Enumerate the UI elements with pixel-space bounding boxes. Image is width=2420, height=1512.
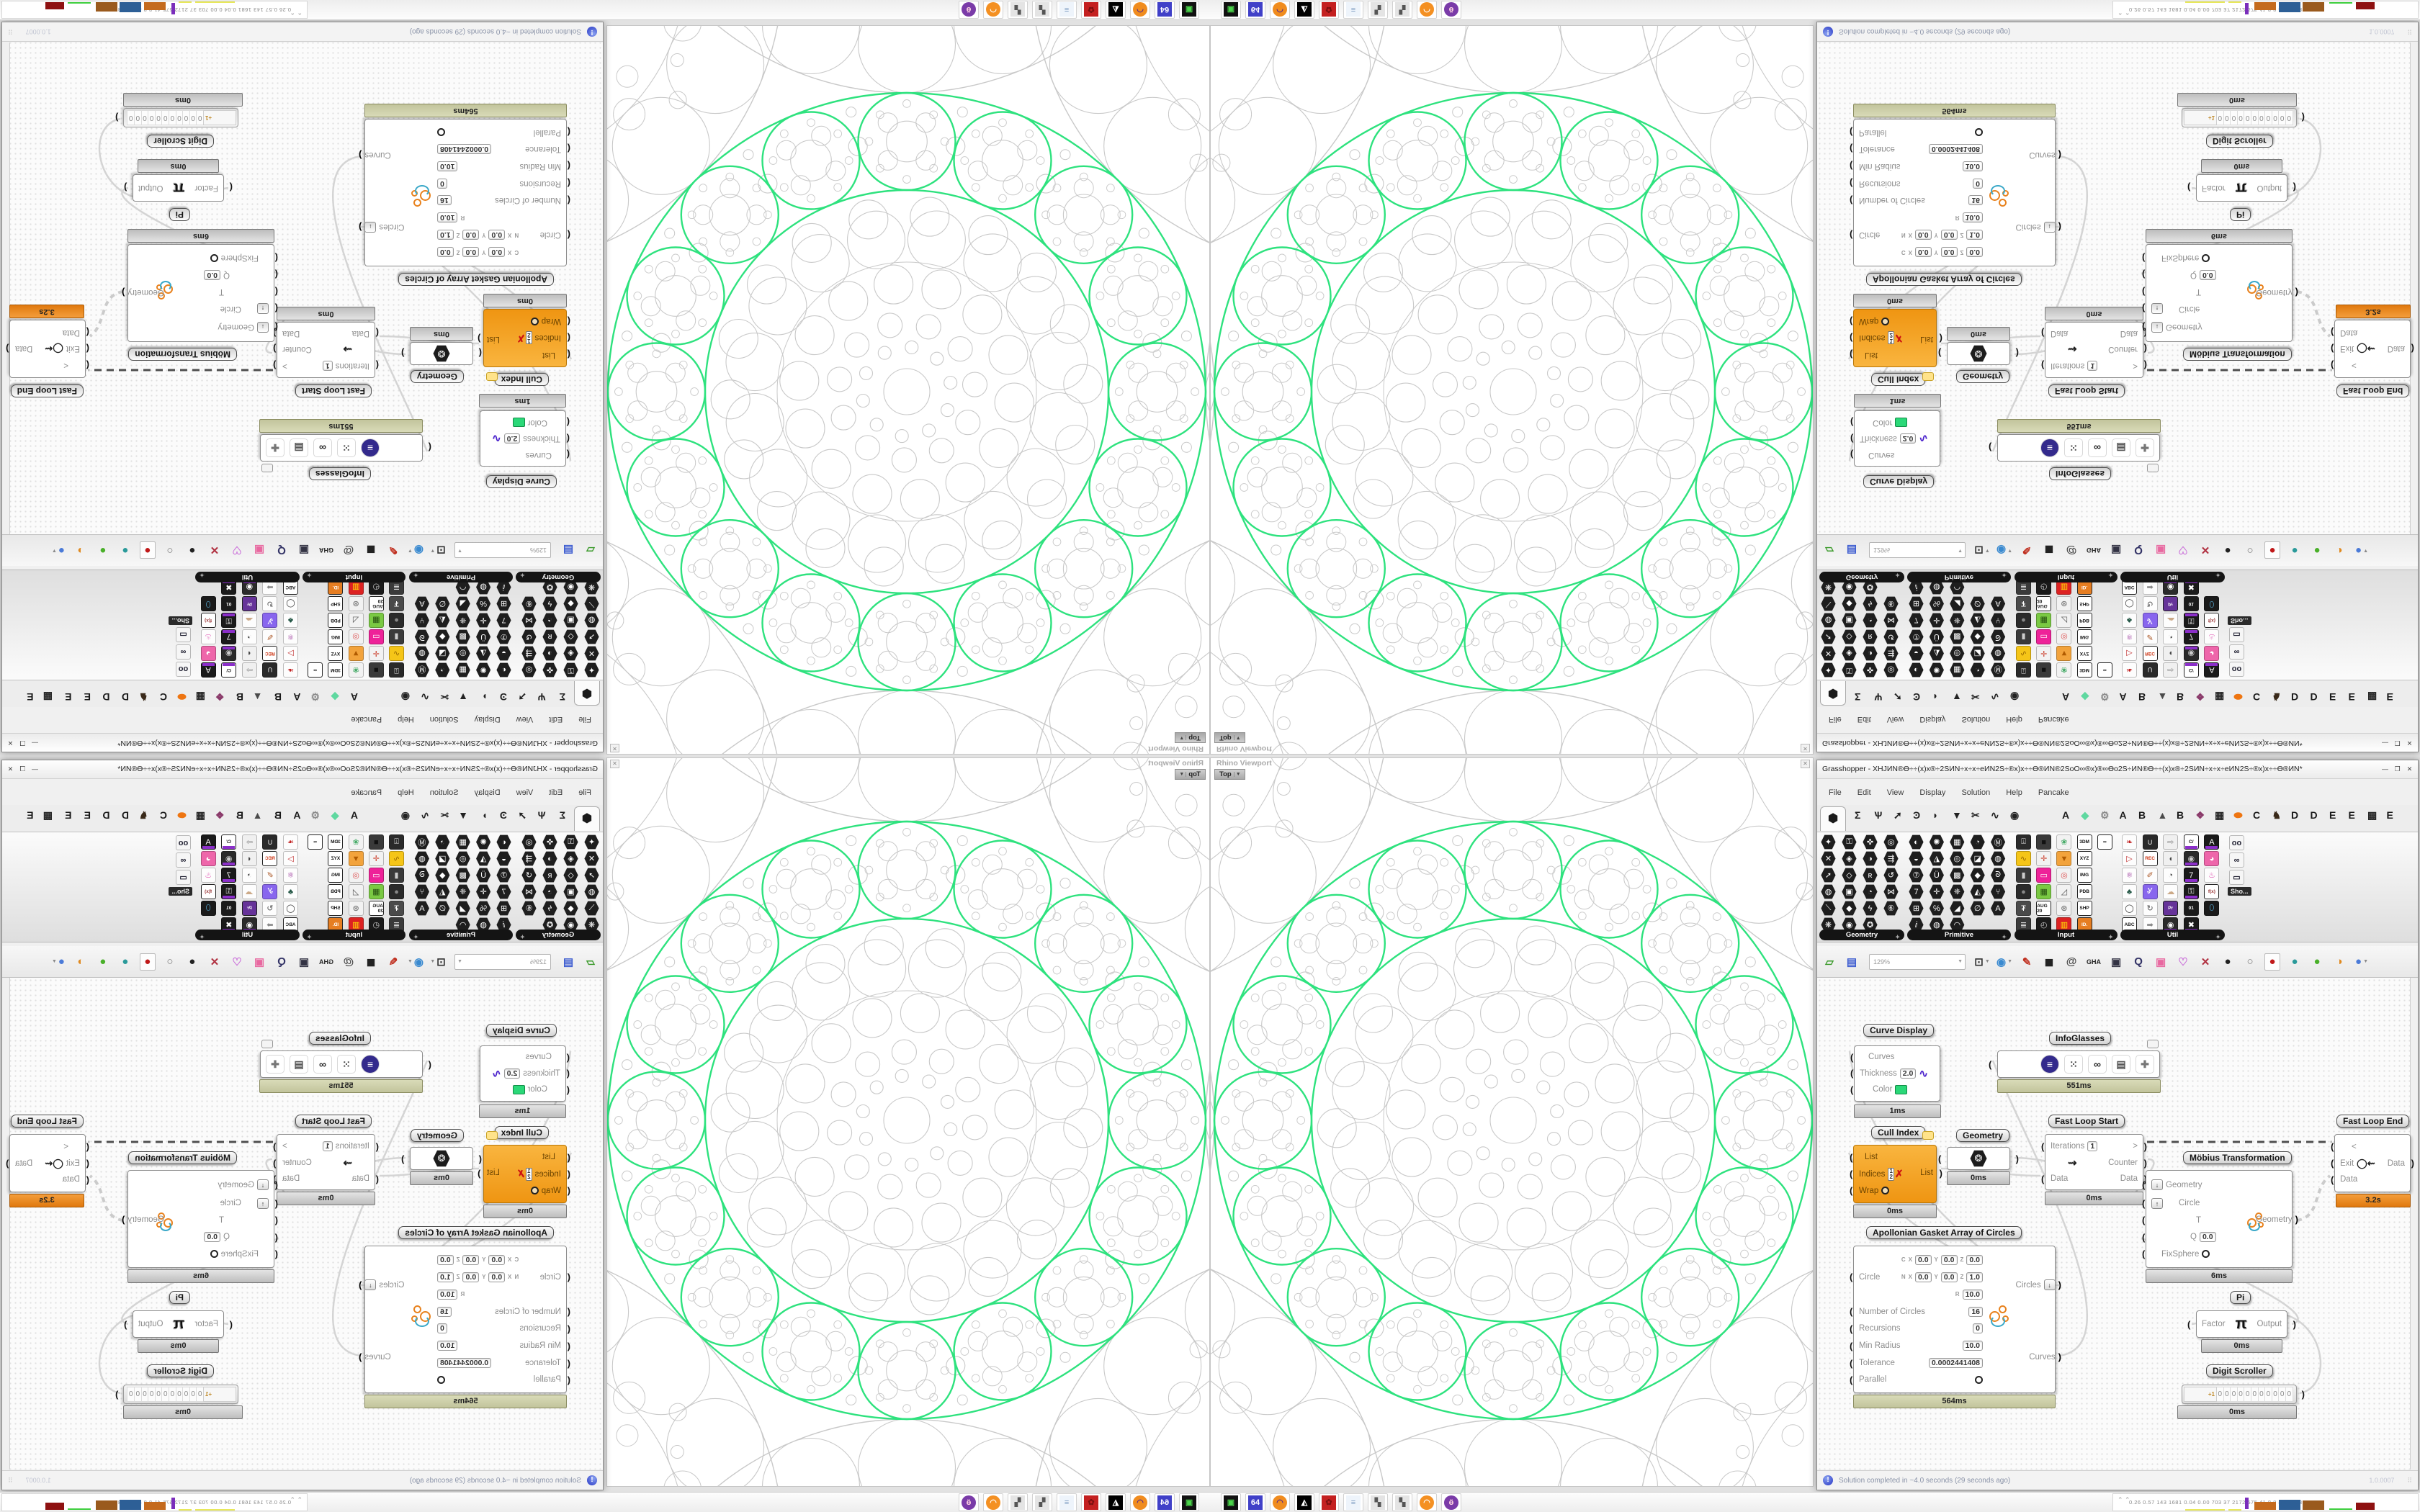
component-icon[interactable]: IMG [328,868,343,883]
output-connector[interactable]: ) [2058,1351,2061,1362]
maximize-button[interactable]: ❐ [17,738,28,748]
component-icon[interactable]: Pr [242,901,257,916]
shaded-red-icon[interactable]: ● [140,542,156,559]
component-icon[interactable]: A [201,662,216,678]
fixsphere-toggle[interactable] [210,254,218,262]
component-icon[interactable]: ⚿ [563,834,578,850]
component-icon[interactable]: ◮ [476,646,491,661]
component-icon[interactable]: 7 [221,868,236,883]
menu-item-display[interactable]: Display [1919,788,1945,797]
plugin-tab-icon[interactable]: B [236,691,243,703]
component-icon[interactable]: REC [262,851,277,866]
component-icon[interactable]: A [414,901,429,916]
component-icon[interactable]: PDB [328,884,343,899]
component-icon[interactable]: ▦ [1950,834,1965,850]
component-icon[interactable]: Ü [476,868,491,883]
plugin-tab-icon[interactable]: E [27,691,33,703]
node-label-fast-loop-end[interactable]: Fast Loop End [2336,1115,2409,1128]
component-icon[interactable]: IMG [2077,868,2092,883]
digit-cell[interactable]: 0 [189,110,197,125]
component-icon[interactable]: ◆ [563,901,578,916]
node-geometry[interactable]: ( ❂ ) [410,342,473,365]
component-icon[interactable]: ∪ [2143,834,2158,850]
component-icon[interactable]: ◪ [1970,646,1985,661]
close-button[interactable]: ✕ [2404,764,2415,774]
input-connector[interactable]: ( [275,322,278,333]
component-icon[interactable]: ◐ [496,662,511,678]
node-label-mobius[interactable]: Möbius Transformation [2183,1151,2292,1164]
circle-nz[interactable]: 1.0 [437,230,454,240]
iterations-value[interactable]: 1 [323,1141,333,1151]
component-icon[interactable]: Pr [2163,596,2178,611]
component-icon[interactable]: ◔ [1970,834,1985,850]
taskbar-app-maze-1[interactable]: ▚ [1368,1,1388,19]
input-connector[interactable]: ( [86,327,89,338]
component-icon[interactable]: ⑂ [414,613,429,628]
input-connector[interactable]: ( [86,1158,89,1169]
minimize-button[interactable]: — [2380,764,2390,774]
component-icon[interactable]: ◔ [2163,868,2178,883]
component-icon[interactable]: ▣ [1842,613,1857,628]
circle-nz[interactable]: 1.0 [1966,1272,1983,1282]
input-connector[interactable]: ( [568,127,570,138]
circle-cy[interactable]: 0.0 [463,1255,480,1265]
resize-grip-icon[interactable]: ⠿ [8,1477,13,1485]
component-icon[interactable]: ∿ [389,646,404,661]
gh-canvas-toolbar[interactable]: ▱ ▤ 129%▼ ⊡▼◉▼✎◼@GHA▣Q▣♡✕●○●●●◑●▼ [1817,946,2418,978]
palette-group-label[interactable]: Util✦ [2120,930,2225,940]
tab-icon[interactable]: Ͽ [500,809,507,821]
output-connector[interactable]: ) [2302,1389,2305,1400]
number-of-circles-value[interactable]: 16 [1968,196,1983,206]
output-connector[interactable]: ) [1940,334,1942,345]
thickness-value[interactable]: 2.0 [1900,434,1917,444]
taskbar-app-wolf[interactable]: ◭ [1294,1,1314,19]
component-icon[interactable]: ◔ [1863,613,1878,628]
infoglasses-button-icon[interactable]: ▤ [2112,438,2130,457]
display-blue-icon[interactable]: ●▼ [2354,953,2370,971]
node-label-pi[interactable]: Pi [2230,1291,2251,1304]
output-connector[interactable]: ) [115,112,118,123]
component-icon[interactable]: ❈ [455,613,470,628]
component-icon[interactable]: ◪ [435,851,450,866]
comment-bubble-icon[interactable] [1922,1131,1934,1140]
component-icon[interactable]: ◎ [1950,851,1965,866]
input-connector[interactable]: ( [2187,183,2190,194]
node-label-apollonian[interactable]: Apollonian Gasket Array of Circles [398,273,554,286]
component-icon[interactable]: ⑦ [496,868,511,883]
component-icon[interactable]: ⇨ [242,834,257,850]
iterations-value[interactable]: 1 [2087,361,2097,371]
input-connector[interactable]: ( [568,1272,570,1282]
q-value[interactable]: 0.0 [2200,270,2216,280]
component-icon[interactable]: ✦ [1821,834,1836,850]
circle-nz[interactable]: 1.0 [1966,230,1983,240]
component-icon[interactable]: ◇ [1842,868,1857,883]
input-connector[interactable]: ( [568,316,570,327]
component-icon[interactable]: ▷ [2122,646,2137,661]
node-curve-display[interactable]: (Curves (Thickness2.0∿ (Color [1854,1045,1940,1102]
node-fast-loop-start[interactable]: (Iterations1>) ⇝Counter) (DataData) [2045,1134,2143,1190]
gh-canvas-toolbar[interactable]: ▱ ▤ 129%▼ ⊡▼◉▼✎◼@GHA▣Q▣♡✕●○●●●◑●▼ [2,534,603,566]
tab-params[interactable]: ⬢ [574,681,600,706]
component-icon[interactable]: ◒ [496,851,511,866]
close-button[interactable]: ✕ [2404,738,2415,748]
component-icon[interactable]: ᘐ [414,629,429,644]
component-icon[interactable]: ● [2016,884,2031,899]
taskbar-app-maze-1[interactable]: ▚ [1368,1493,1388,1511]
component-icon[interactable]: Ꮍ [2143,884,2158,899]
component-icon[interactable]: ◢ [1950,901,1965,916]
circle-nx[interactable]: 0.0 [488,1272,505,1282]
balloon-icon[interactable]: ♡ [2175,542,2191,559]
gift-icon[interactable]: ▣ [2153,953,2169,971]
digit-cell[interactable]: 0 [155,1387,162,1402]
taskbar-app-mumble[interactable]: ӫ [1441,1,1461,19]
node-cull-index[interactable]: (List (Indices12✗ (Wrap List) [1853,309,1937,367]
circle-nx[interactable]: 0.0 [1915,230,1932,240]
component-icon[interactable]: ∪ [2143,662,2158,678]
palette-group-label[interactable]: Input✦ [2015,572,2117,582]
component-icon[interactable]: ✛ [369,851,384,866]
component-icon[interactable]: ▣ [563,884,578,899]
gh-canvas-toolbar[interactable]: ▱ ▤ 129%▼ ⊡▼◉▼✎◼@GHA▣Q▣♡✕●○●●●◑●▼ [1817,534,2418,566]
gh-component-palette[interactable]: ✦⚿✜◎✕◈◑⇶➚◇ʀ↺◍▣◔⋈⟍◆ϟ⑥❋◉✪Geometry✦◐✺▦◔Ⓜ◒◮◎… [2,570,603,680]
plugin-tab-icon[interactable]: D [2311,809,2318,821]
plugin-tab-icon[interactable]: ♞ [139,690,148,703]
component-icon[interactable]: ∪ [262,834,277,850]
doc-teal-icon[interactable]: ● [2287,542,2303,559]
component-icon[interactable]: ✐ [2143,868,2158,883]
component-icon[interactable]: ϟ [1863,596,1878,611]
tab-params[interactable]: ⬢ [574,806,600,831]
component-icon[interactable]: A [414,596,429,611]
output-connector[interactable]: ) [2144,1158,2147,1169]
component-icon[interactable]: ◈ [563,851,578,866]
canvas-scrollbar[interactable] [2410,978,2418,1470]
output-connector[interactable]: ) [2411,343,2414,354]
component-icon[interactable]: ⚿ [1842,834,1857,850]
component-icon[interactable]: ◖ [2163,851,2178,866]
input-connector[interactable]: ( [2142,1179,2145,1190]
down-arrow-button[interactable]: ↓ [2151,322,2163,333]
taskbar-app-notepad[interactable]: ≡ [1057,1493,1077,1511]
gh-component-palette[interactable]: ✦⚿✜◎✕◈◑⇶➚◇ʀ↺◍▣◔⋈⟍◆ϟ⑥❋◉✪Geometry✦◐✺▦◔Ⓜ◒◮◎… [2,832,603,942]
component-icon[interactable]: ⇶ [1883,851,1899,866]
component-icon[interactable]: ❈ [455,884,470,899]
viewport-close-icon[interactable]: ✕ [610,760,619,768]
node-infoglasses[interactable]: ( ≡⁙∞▤✚ [260,434,423,462]
component-icon[interactable]: XYZ [328,646,343,661]
component-icon[interactable]: ⚿ [2184,613,2199,628]
node-label-mobius[interactable]: Möbius Transformation [2183,348,2292,361]
component-icon[interactable]: ₮ [2016,901,2031,916]
balloon-icon[interactable]: ♡ [2175,953,2191,971]
component-icon[interactable]: ᘐ [414,868,429,883]
gh-menu-bar[interactable]: FileEditViewDisplaySolutionHelpPancake [2,708,603,730]
menu-item-solution[interactable]: Solution [1961,788,1990,797]
palette-group-label[interactable]: Input✦ [302,572,405,582]
viewport-view-selector[interactable]: Top ▼ [1214,732,1245,743]
component-icon[interactable]: ➚ [1821,868,1836,883]
circle-cz[interactable]: 0.0 [1966,1255,1983,1265]
palette-group-label[interactable]: Geometry✦ [1819,572,1904,582]
component-icon[interactable]: ◢ [455,901,470,916]
taskbar-app-notepad[interactable]: ≡ [1057,1,1077,19]
node-label-curve-display[interactable]: Curve Display [1863,1024,1934,1037]
node-digit-scroller[interactable]: +1 00000000000 ) [123,1385,238,1404]
component-icon[interactable]: A [201,834,216,850]
component-icon[interactable]: 7 [496,613,511,628]
taskbar-app-maze-2[interactable]: ▚ [1392,1493,1412,1511]
plugin-tab-icon[interactable]: E [84,691,91,703]
palette-group-label[interactable]: Sho... [169,887,193,896]
input-connector[interactable]: ( [376,361,379,372]
node-digit-scroller[interactable]: +1 00000000000 ) [2182,108,2297,127]
gh-tab-strip[interactable]: ⬢ΣѰ➚Ͽ◗▼✂∿◉A◆⚙AB▲B❖▦⬬C♞DDEE▩E [2,680,603,707]
minimize-button[interactable]: — [30,764,40,774]
infoglasses-button-icon[interactable]: ⁙ [337,1055,356,1074]
component-icon[interactable]: ʀ [542,629,557,644]
number-of-circles-value[interactable]: 16 [1968,1307,1983,1317]
save-file-icon[interactable]: ▤ [560,542,576,559]
input-connector[interactable]: ( [567,1068,570,1079]
input-connector[interactable]: ( [568,1169,570,1179]
component-icon[interactable]: ⇨ [2163,662,2178,678]
digit-cell[interactable]: 0 [2259,1387,2266,1402]
component-icon[interactable]: ⑥ [1883,596,1899,611]
output-connector[interactable]: ) [6,1158,9,1169]
gha-icon[interactable]: GHA [2086,953,2102,971]
input-connector[interactable]: ( [86,360,89,371]
component-icon[interactable]: ⚛ [283,868,298,883]
output-connector[interactable]: ) [273,1158,276,1169]
palette-group-label[interactable]: Primitive✦ [1907,572,2011,582]
input-connector[interactable]: ( [568,1323,570,1334]
component-icon[interactable]: ◯ [2122,901,2137,916]
component-icon[interactable]: ⚿ [221,884,236,899]
digit-cell[interactable]: 0 [2224,1387,2231,1402]
q-value[interactable]: 0.0 [2200,1232,2216,1242]
thickness-value[interactable]: 2.0 [1900,1068,1917,1079]
component-icon[interactable]: 7 [2184,868,2199,883]
component-icon[interactable]: ₮ [389,901,404,916]
chevron-down-icon[interactable]: ▼ [1234,772,1242,777]
digit-cell[interactable]: 0 [2286,1387,2293,1402]
balloon-icon[interactable]: ♡ [229,542,245,559]
input-connector[interactable]: ( [2331,1174,2334,1185]
component-icon[interactable]: 7 [1909,884,1924,899]
component-icon[interactable]: ◒ [496,646,511,661]
input-connector[interactable]: ( [479,1153,482,1164]
input-connector[interactable]: ( [568,333,570,343]
plugin-tab-icon[interactable]: C [160,809,167,821]
component-icon[interactable]: ↺ [521,868,537,883]
input-connector[interactable]: ( [568,349,570,360]
component-icon[interactable]: C/ [221,834,236,850]
plugin-tab-icon[interactable]: ⬬ [178,809,187,822]
down-arrow-button[interactable]: ↓ [2044,1279,2056,1290]
wireframe-icon[interactable]: ○ [162,953,178,971]
remote-icon[interactable]: @ [341,953,357,971]
up-arrow-button[interactable]: ↑ [2151,303,2163,314]
component-icon[interactable]: XYZ [2077,646,2092,661]
zoom-level-select[interactable]: 129%▼ [454,543,551,559]
palette-group-label[interactable]: Primitive✦ [409,572,513,582]
component-icon[interactable]: ◿ [349,884,364,899]
tray-collapse-icon[interactable]: ⌃ ⌃ [290,9,302,14]
taskbar-app-floppy-64[interactable]: 64 [1245,1,1265,19]
circle-ny[interactable]: 0.0 [1941,1272,1958,1282]
node-label-digit-scroller[interactable]: Digit Scroller [147,1364,214,1377]
component-icon[interactable]: ϟ [1863,901,1878,916]
glasses-icon[interactable]: ∞ [2229,852,2244,868]
digit-cell[interactable]: 0 [161,1387,169,1402]
node-fast-loop-end[interactable]: (< (Exit◯⇜Data) (Data [2334,320,2411,378]
component-icon[interactable]: ✐ [2143,629,2158,644]
jitter-icon[interactable]: ✕ [207,542,223,559]
component-icon[interactable]: ∅ [1970,596,1985,611]
input-connector[interactable]: ( [429,443,431,454]
down-arrow-button[interactable]: ↓ [364,222,376,233]
q-value[interactable]: 0.0 [204,270,220,280]
tab-icon[interactable]: ◗ [482,809,488,821]
digit-cell[interactable]: 0 [148,110,155,125]
infoglasses-button-icon[interactable]: ∞ [313,1055,332,1074]
up-arrow-button[interactable]: ↑ [2151,1198,2163,1209]
taskbar[interactable]: ⌃ ⌃ 0.26 0.57 143 1681 0.04 0.00 703 37 … [0,1492,1210,1512]
preview-eye-icon[interactable]: ◉▼ [1996,542,2012,559]
gha-icon[interactable]: GHA [2086,542,2102,559]
circle-cx[interactable]: 0.0 [488,247,505,257]
taskbar-app-firefox-2[interactable]: ◠ [983,1493,1003,1511]
input-connector[interactable]: ( [2331,327,2334,338]
input-connector[interactable]: ( [568,1374,570,1385]
node-pi[interactable]: ( Factor π Output ) [2196,174,2287,202]
preview-eye-icon[interactable]: ◉▼ [408,542,423,559]
plugin-tab-icon[interactable]: E [2387,691,2393,703]
node-label-digit-scroller[interactable]: Digit Scroller [2206,1364,2273,1377]
component-icon[interactable]: ◆ [1842,596,1857,611]
taskbar-app-console[interactable]: ▣ [1221,1493,1241,1511]
grasshopper-window[interactable]: Grasshopper - ХНЈИN®Ө÷÷(х)х®÷2ЅИN÷х÷х÷еИ… [1,760,604,1490]
component-icon[interactable]: ▮ [389,868,404,883]
circle-nz[interactable]: 1.0 [437,1272,454,1282]
digit-cell[interactable]: 0 [141,110,148,125]
taskbar-app-floppy-64[interactable]: 64 [1245,1493,1265,1511]
component-icon[interactable]: ↺ [521,629,537,644]
output-connector[interactable]: ) [273,1141,276,1152]
digit-cell[interactable]: 0 [2231,110,2238,125]
component-icon[interactable]: ❀ [349,834,364,850]
system-tray[interactable]: ⌃ ⌃ 0.26 0.57 143 1681 0.04 0.00 703 37 … [1,1,308,19]
node-label-geometry[interactable]: Geometry [411,1129,464,1142]
input-connector[interactable]: ( [275,1248,278,1259]
gh-canvas[interactable]: Curve Display (Curves (Thickness2.0∿ (Co… [2,978,603,1470]
node-infoglasses[interactable]: ( ≡⁙∞▤✚ [1997,434,2160,462]
component-icon[interactable]: f(x) [2204,613,2219,628]
component-icon[interactable]: ✺ [476,834,491,850]
circle-cx[interactable]: 0.0 [1915,247,1932,257]
menu-item-edit[interactable]: Edit [1857,788,1871,797]
wrap-toggle[interactable] [1881,1187,1889,1194]
doc-teal-icon[interactable]: ● [117,542,133,559]
plugin-tab-icon[interactable]: ▩ [2367,809,2377,822]
plugin-tab-icon[interactable]: A [351,809,358,821]
comment-bubble-icon[interactable] [261,464,273,472]
infoglasses-button-icon[interactable]: ✚ [266,438,284,457]
plugin-tab-icon[interactable]: ♞ [2272,809,2282,822]
tab-icon[interactable]: ◗ [1932,809,1938,821]
node-label-cull-index[interactable]: Cull Index [1871,1126,1925,1139]
component-icon[interactable]: ➚ [1821,629,1836,644]
component-icon[interactable]: ✛ [476,884,491,899]
digit-cell[interactable]: 0 [2279,110,2286,125]
node-label-cull-index[interactable]: Cull Index [1871,373,1925,386]
node-fast-loop-start[interactable]: (Iterations1>) ⇝Counter) (DataData) [2045,322,2143,378]
output-connector[interactable]: ) [2144,1141,2147,1152]
component-icon[interactable]: ❀ [2056,662,2071,678]
digit-cell[interactable]: 0 [182,1387,189,1402]
remote-icon[interactable]: @ [341,542,357,559]
node-label-mobius[interactable]: Möbius Transformation [128,1151,237,1164]
output-connector[interactable]: ) [2295,287,2298,298]
component-icon[interactable]: A [2204,834,2219,850]
component-icon[interactable]: ∅ [1970,901,1985,916]
palette-group-label[interactable]: Input✦ [302,930,405,940]
component-icon[interactable]: PDB [328,613,343,628]
component-icon[interactable]: ◮ [1929,646,1944,661]
node-mobius[interactable]: (↓Geometry (↑Circle (T (Q0.0 (FixSphere … [127,1170,274,1268]
component-icon[interactable]: AUG 20 [369,901,384,916]
node-fast-loop-end[interactable]: (< (Exit◯⇜Data) (Data [2334,1134,2411,1192]
taskbar-app-console[interactable]: ▣ [1179,1,1199,19]
node-fast-loop-start[interactable]: (Iterations1>) ⇝Counter) (DataData) [277,1134,375,1190]
input-connector[interactable]: ( [1989,443,1991,454]
input-connector[interactable]: ( [1850,1052,1853,1063]
plugin-tab-icon[interactable]: E [65,809,71,821]
plugin-tab-icon[interactable]: D [122,809,129,821]
input-connector[interactable]: ( [2142,322,2145,333]
node-digit-scroller[interactable]: +1 00000000000 ) [123,108,238,127]
plugin-tab-icon[interactable]: ⬬ [2234,809,2243,822]
node-pi[interactable]: ( Factor π Output ) [133,174,224,202]
comment-bubble-icon[interactable] [261,1040,273,1048]
plugin-tab-icon[interactable]: ◆ [2081,809,2089,822]
digit-cell[interactable]: 0 [148,1387,155,1402]
tab-icon[interactable]: ◉ [2010,690,2019,703]
component-icon[interactable]: ✛ [2036,646,2051,661]
infoglasses-button-icon[interactable]: ⁙ [2064,1055,2083,1074]
palette-group-label[interactable]: Geometry✦ [516,572,601,582]
component-icon[interactable]: ◎ [521,662,537,678]
menu-item-view[interactable]: View [516,715,534,724]
plugin-tab-icon[interactable]: ⚙ [310,690,320,703]
zoom-extents-icon[interactable]: ⊡▼ [1974,953,1990,971]
digit-cell[interactable]: 0 [2217,1387,2224,1402]
digit-cell[interactable]: 0 [2224,110,2231,125]
component-icon[interactable]: ▭ [2036,868,2051,883]
component-icon[interactable]: ▦ [455,834,470,850]
taskbar-app-firefox-1[interactable]: ◠ [1130,1,1150,19]
component-icon[interactable]: ◍ [1991,851,2006,866]
component-icon[interactable]: ⑥ [1883,901,1899,916]
gh-title-bar[interactable]: Grasshopper - ХНЈИN®Ө÷÷(х)х®÷2ЅИN÷х÷х÷еИ… [1817,760,2418,779]
digit-cell[interactable]: 0 [161,110,169,125]
component-icon[interactable]: ⬯ [2204,901,2219,916]
menu-item-pancake[interactable]: Pancake [351,715,382,724]
find-icon[interactable]: Q [274,542,290,559]
